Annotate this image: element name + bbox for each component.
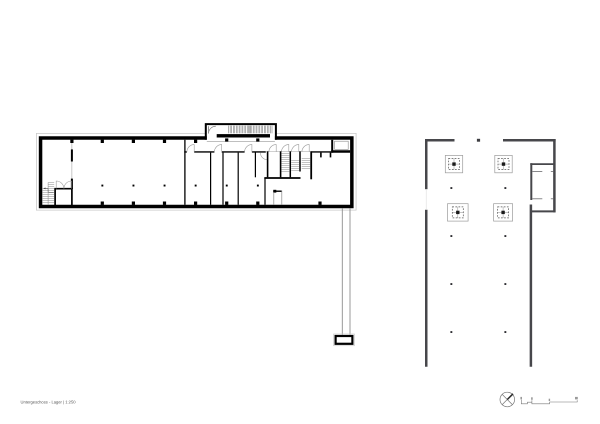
svg-text:Untergeschoss - Lager | 1:250: Untergeschoss - Lager | 1:250 <box>21 399 77 404</box>
